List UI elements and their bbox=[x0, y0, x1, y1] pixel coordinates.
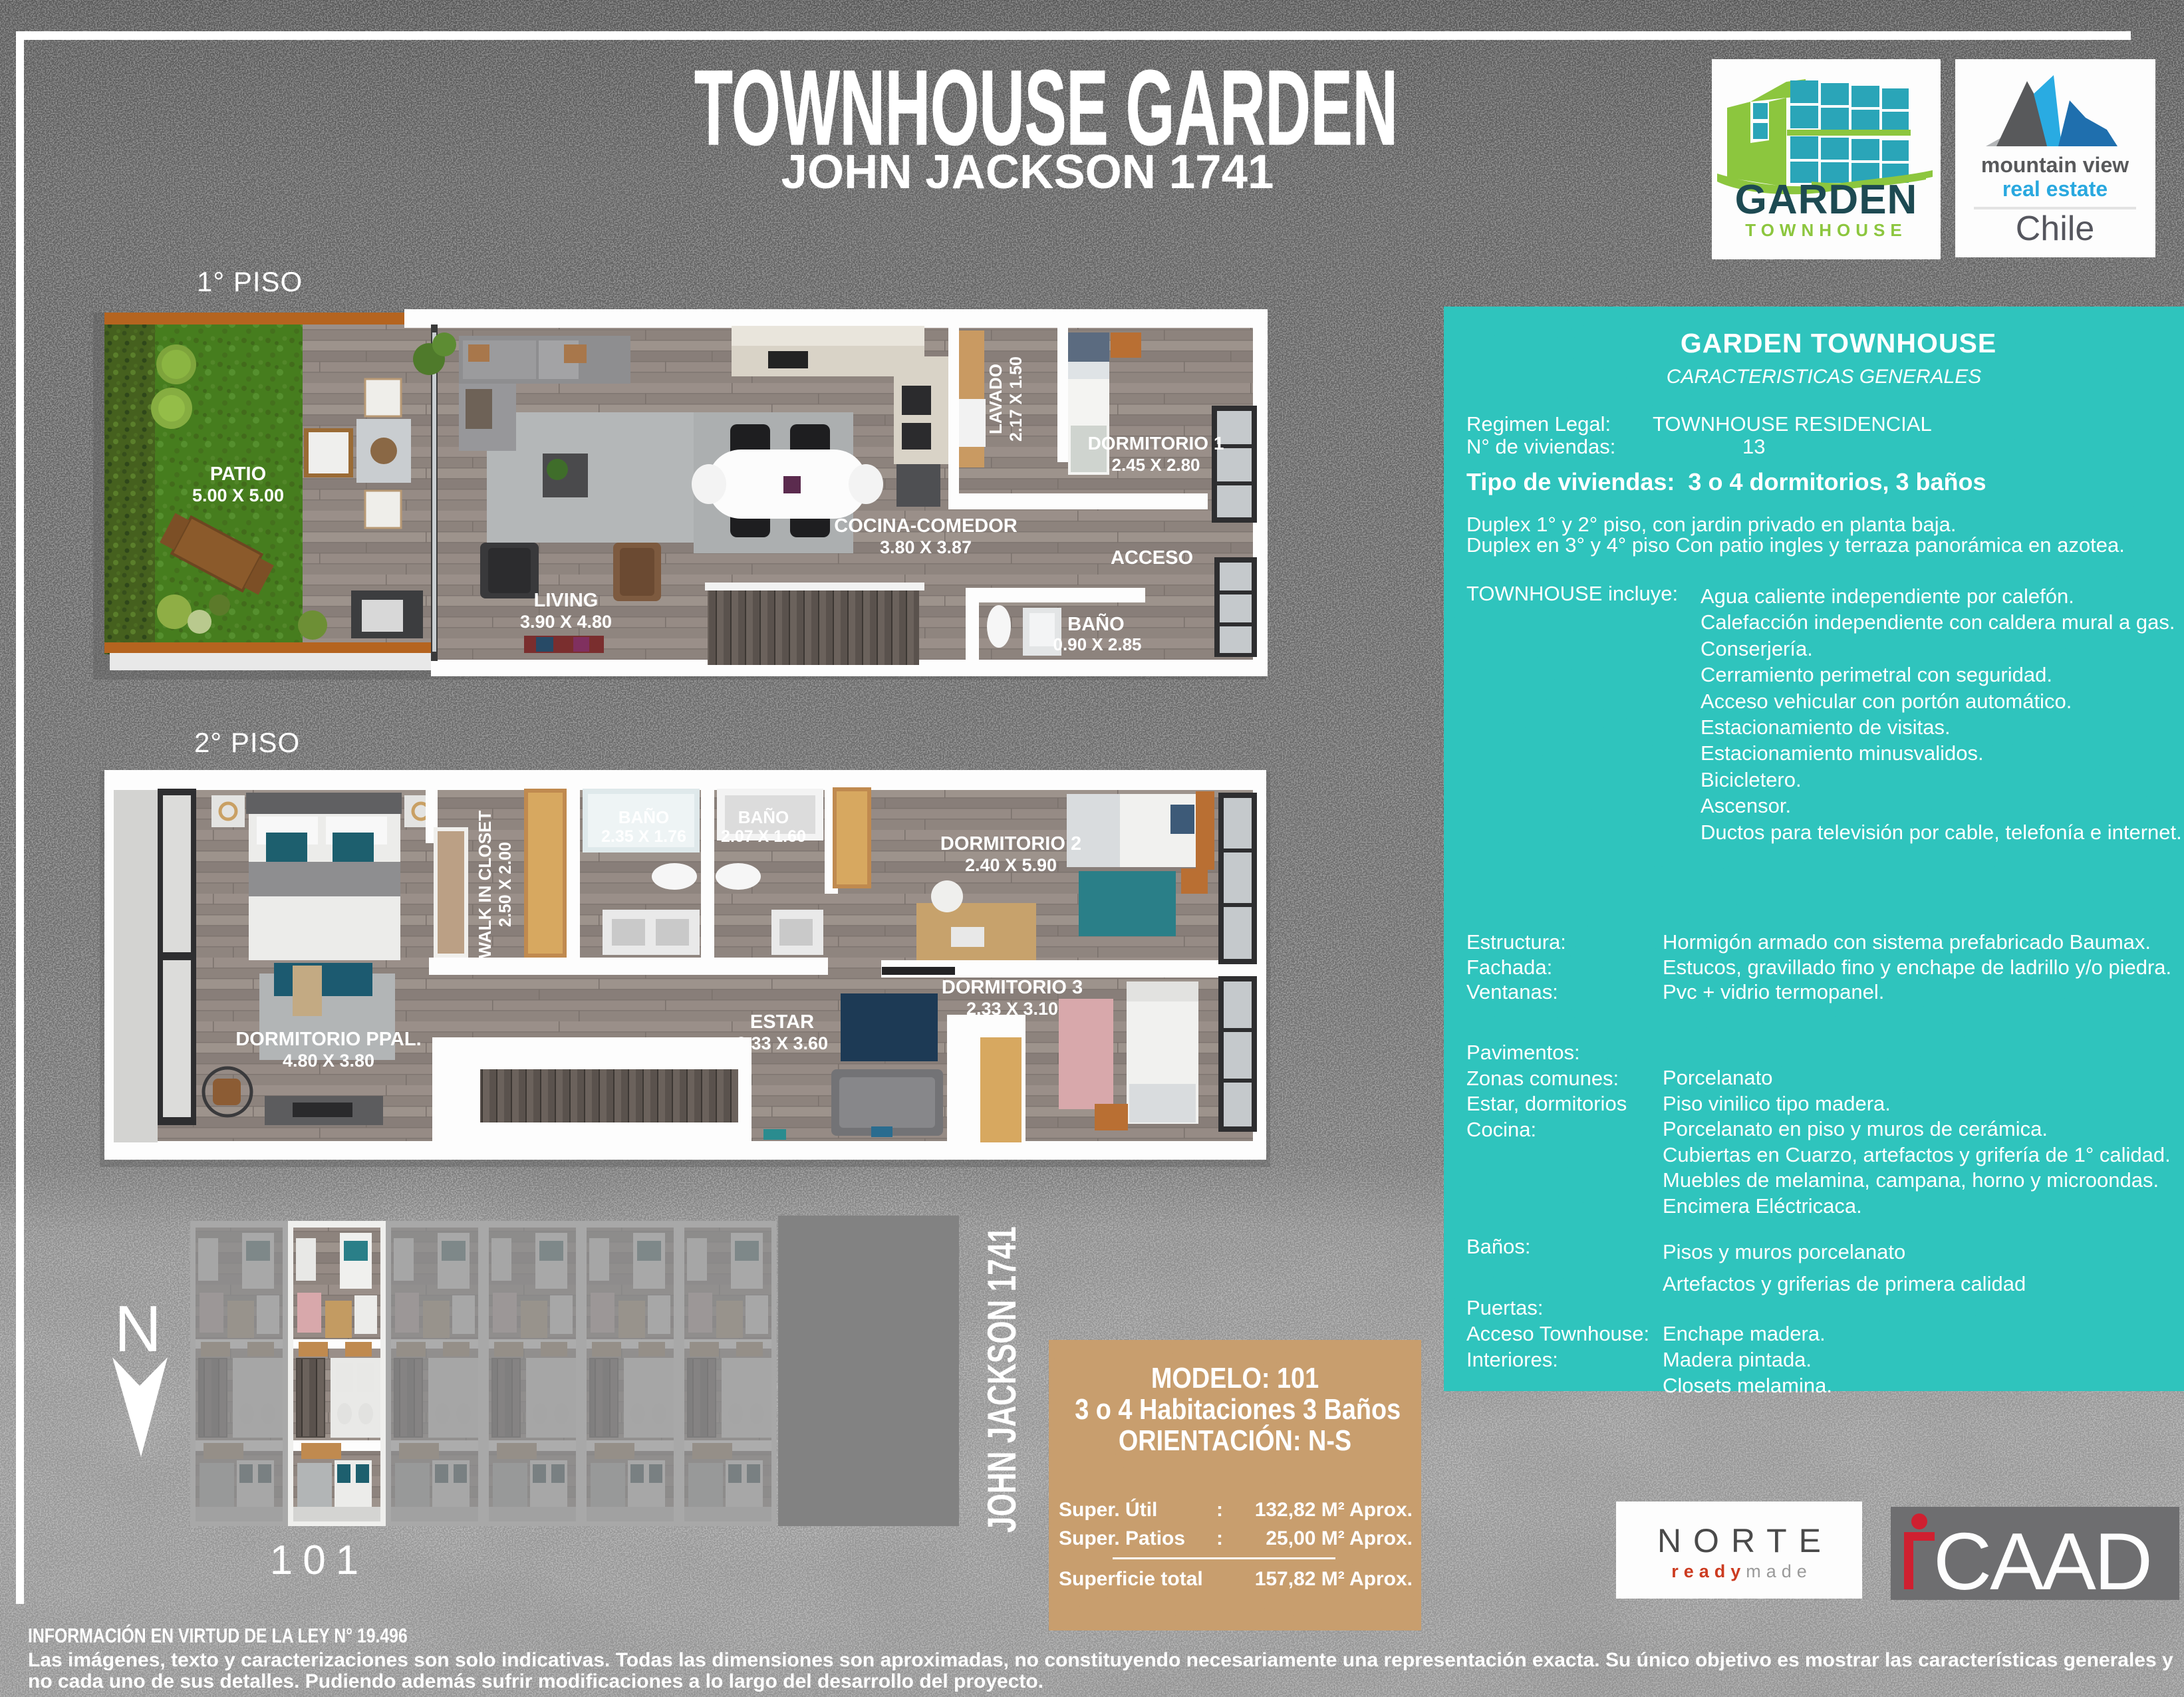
svg-text:WALK IN CLOSET: WALK IN CLOSET bbox=[475, 811, 495, 959]
svg-text:2.50 X 2.00: 2.50 X 2.00 bbox=[496, 842, 515, 927]
svg-text:BAÑO: BAÑO bbox=[618, 807, 670, 827]
svg-text:real estate: real estate bbox=[2002, 177, 2108, 201]
svg-text:BAÑO: BAÑO bbox=[1067, 612, 1124, 635]
svg-text:0.90 X 2.85: 0.90 X 2.85 bbox=[1053, 634, 1142, 654]
svg-text:LIVING: LIVING bbox=[534, 590, 599, 611]
svg-text:BAÑO: BAÑO bbox=[738, 807, 789, 827]
svg-text:ESTAR: ESTAR bbox=[750, 1011, 814, 1033]
svg-text:2.45 X 2.80: 2.45 X 2.80 bbox=[1112, 455, 1200, 475]
svg-text:2.35 X 1.76: 2.35 X 1.76 bbox=[601, 827, 686, 846]
svg-text:2.33 X 3.10: 2.33 X 3.10 bbox=[966, 999, 1058, 1019]
svg-text:TOWNHOUSE: TOWNHOUSE bbox=[1745, 220, 1907, 240]
svg-text:2.07 X 1.60: 2.07 X 1.60 bbox=[721, 827, 806, 846]
svg-text:2.40 X 5.90: 2.40 X 5.90 bbox=[965, 855, 1057, 875]
svg-text:LAVADO: LAVADO bbox=[986, 364, 1006, 434]
svg-text:GARDEN: GARDEN bbox=[1735, 177, 1918, 223]
svg-text:DORMITORIO 3: DORMITORIO 3 bbox=[942, 977, 1083, 998]
svg-text:COCINA-COMEDOR: COCINA-COMEDOR bbox=[834, 515, 1018, 537]
svg-text:Chile: Chile bbox=[2016, 209, 2095, 248]
svg-text:CAAD: CAAD bbox=[1933, 1516, 2151, 1600]
svg-text:DORMITORIO 1: DORMITORIO 1 bbox=[1088, 433, 1224, 454]
svg-text:2.17 X 1.50: 2.17 X 1.50 bbox=[1007, 356, 1025, 442]
svg-text:ACCESO: ACCESO bbox=[1111, 547, 1193, 569]
svg-text:3.90 X 4.80: 3.90 X 4.80 bbox=[520, 612, 612, 632]
svg-text:4.80 X 3.80: 4.80 X 3.80 bbox=[283, 1051, 374, 1071]
svg-text:DORMITORIO 2: DORMITORIO 2 bbox=[940, 833, 1081, 854]
svg-text:mountain view: mountain view bbox=[1981, 153, 2129, 177]
svg-text:3.80 X 3.87: 3.80 X 3.87 bbox=[880, 537, 972, 557]
svg-text:PATIO: PATIO bbox=[210, 463, 266, 485]
svg-text:DORMITORIO PPAL.: DORMITORIO PPAL. bbox=[235, 1029, 421, 1050]
svg-text:5.00 X 5.00: 5.00 X 5.00 bbox=[192, 485, 284, 505]
